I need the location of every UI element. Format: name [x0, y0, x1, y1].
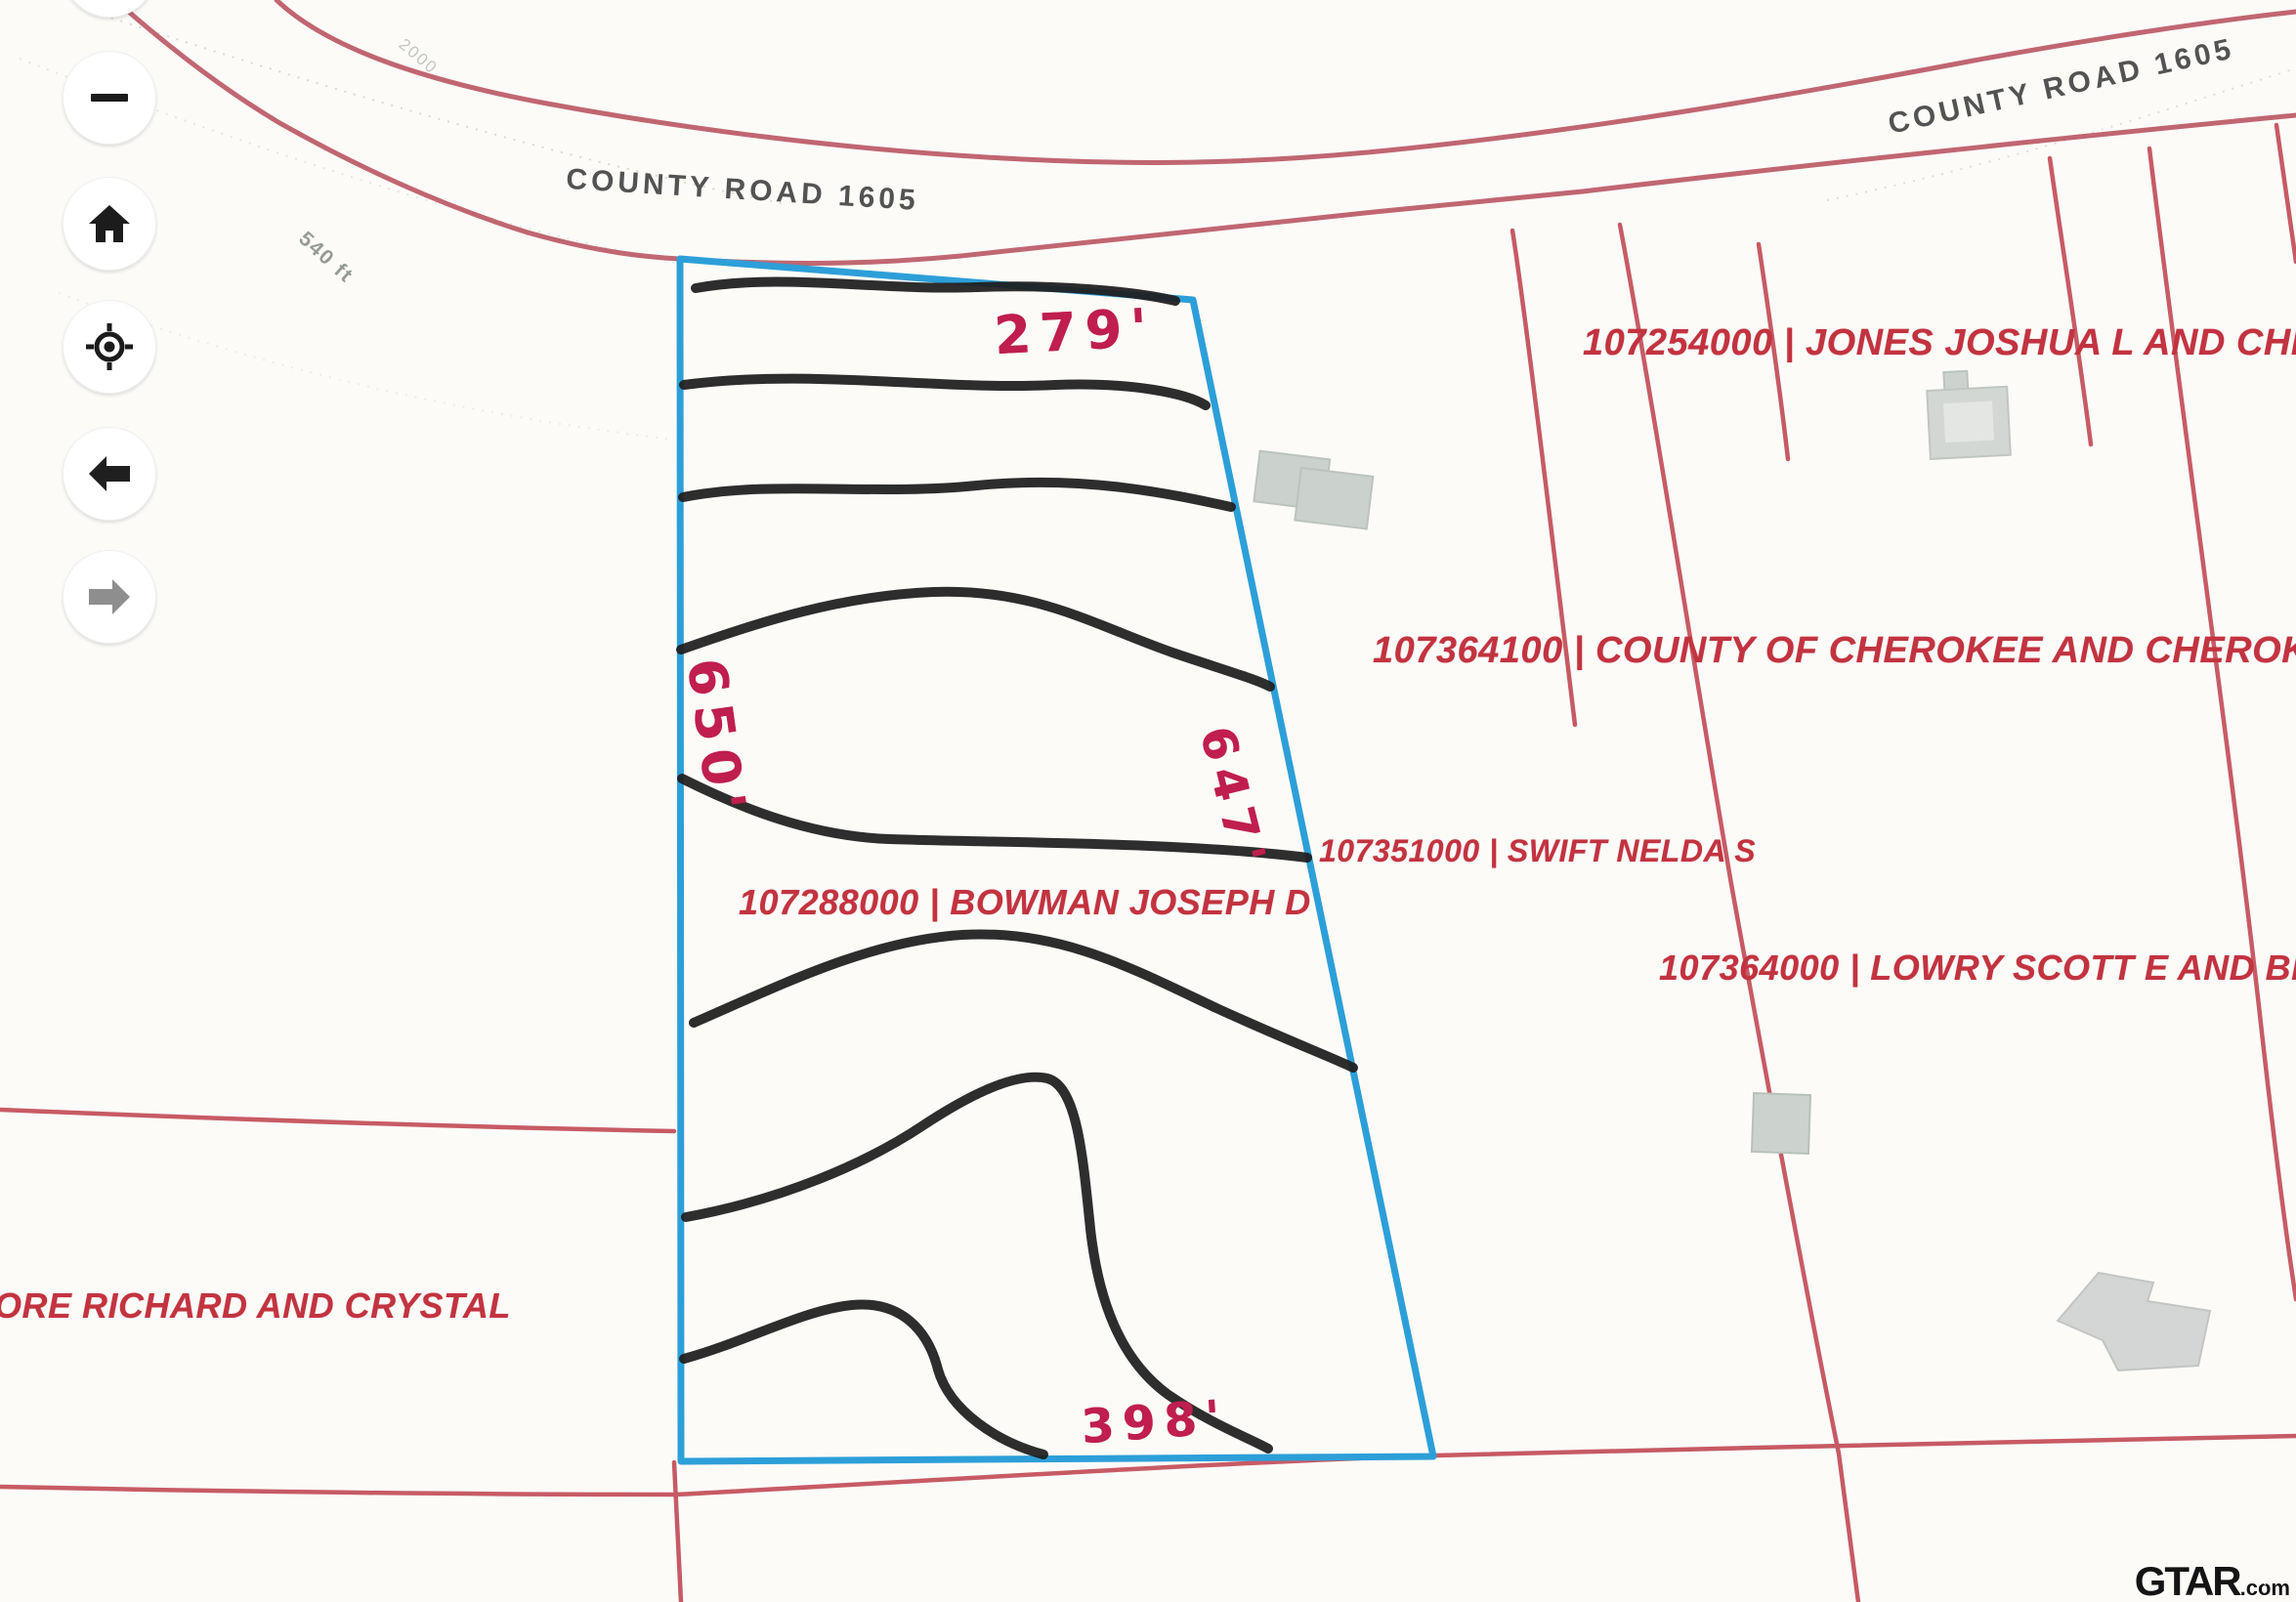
crosshair-icon [86, 323, 133, 370]
home-icon [88, 204, 131, 243]
parcel-label-jones: 107254000 | JONES JOSHUA L AND CHELSEA [1583, 322, 2296, 364]
building-jones [1926, 369, 2010, 459]
building-large [2058, 1273, 2210, 1370]
arrow-right-icon [87, 577, 132, 616]
forward-button[interactable] [63, 550, 156, 644]
parcel-label-cherokee: 107364100 | COUNTY OF CHEROKEE AND CHERO… [1373, 630, 2296, 672]
arrow-left-icon [87, 454, 132, 493]
texas-star-icon: ★ [2257, 1575, 2269, 1587]
road-lines [115, 0, 2296, 263]
gtar-brand-text: GTAR [2135, 1561, 2240, 1602]
parcel-label-swift: 107351000 | SWIFT NELDA S [1319, 833, 1756, 869]
locate-button[interactable] [63, 300, 156, 394]
road-lower-edge [115, 0, 2296, 263]
parcel-label-bowman-subject: 107288000 | BOWMAN JOSEPH D [739, 882, 1311, 923]
dimension-top-279: 279' [975, 296, 1173, 367]
back-button[interactable] [63, 427, 156, 521]
map-vector-layer [0, 0, 2296, 1602]
zoom-out-button[interactable] [63, 51, 156, 145]
building-small-square [1752, 1093, 1810, 1154]
road-upper-edge [276, 0, 2296, 162]
map-canvas[interactable]: COUNTY ROAD 1605 COUNTY ROAD 1605 2000 5… [0, 0, 2296, 1602]
gtar-watermark: GTAR ★ .com [2135, 1561, 2290, 1602]
building-footprints [1253, 369, 2210, 1370]
home-button[interactable] [63, 177, 156, 271]
minus-icon [91, 94, 128, 102]
building-cross [1253, 451, 1375, 529]
parcel-label-moore: ORE RICHARD AND CRYSTAL [0, 1286, 511, 1327]
parcel-label-lowry: 107364000 | LOWRY SCOTT E AND BRI [1659, 948, 2296, 989]
